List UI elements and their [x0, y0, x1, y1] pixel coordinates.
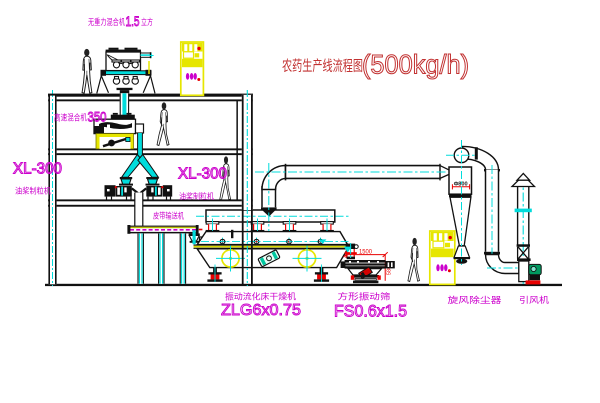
- svg-text:XL-300: XL-300: [178, 166, 227, 183]
- svg-text:立方: 立方: [141, 16, 153, 27]
- svg-text:高速混合机: 高速混合机: [54, 112, 87, 123]
- svg-text:油桨制粒机: 油桨制粒机: [179, 191, 215, 201]
- svg-text:350: 350: [88, 109, 107, 125]
- svg-text:XL-300: XL-300: [13, 161, 62, 178]
- svg-text:无重力混合机: 无重力混合机: [88, 16, 125, 27]
- svg-text:农药生产线流程图: 农药生产线流程图: [282, 58, 363, 75]
- svg-text:皮带输送机: 皮带输送机: [153, 211, 185, 221]
- svg-text:引风机: 引风机: [519, 294, 549, 305]
- svg-text:(500kg/h): (500kg/h): [362, 50, 469, 80]
- svg-text:油桨制粒机: 油桨制粒机: [15, 186, 52, 196]
- svg-text:方形振动筛: 方形振动筛: [338, 291, 391, 302]
- svg-text:振动流化床干燥机: 振动流化床干燥机: [225, 292, 297, 302]
- svg-text:旋风除尘器: 旋风除尘器: [448, 294, 502, 305]
- svg-text:FS0.6x1.5: FS0.6x1.5: [334, 303, 407, 321]
- svg-text:1.5: 1.5: [126, 14, 140, 29]
- svg-text:1500: 1500: [359, 249, 372, 256]
- svg-text:ZLG6x0.75: ZLG6x0.75: [221, 302, 301, 319]
